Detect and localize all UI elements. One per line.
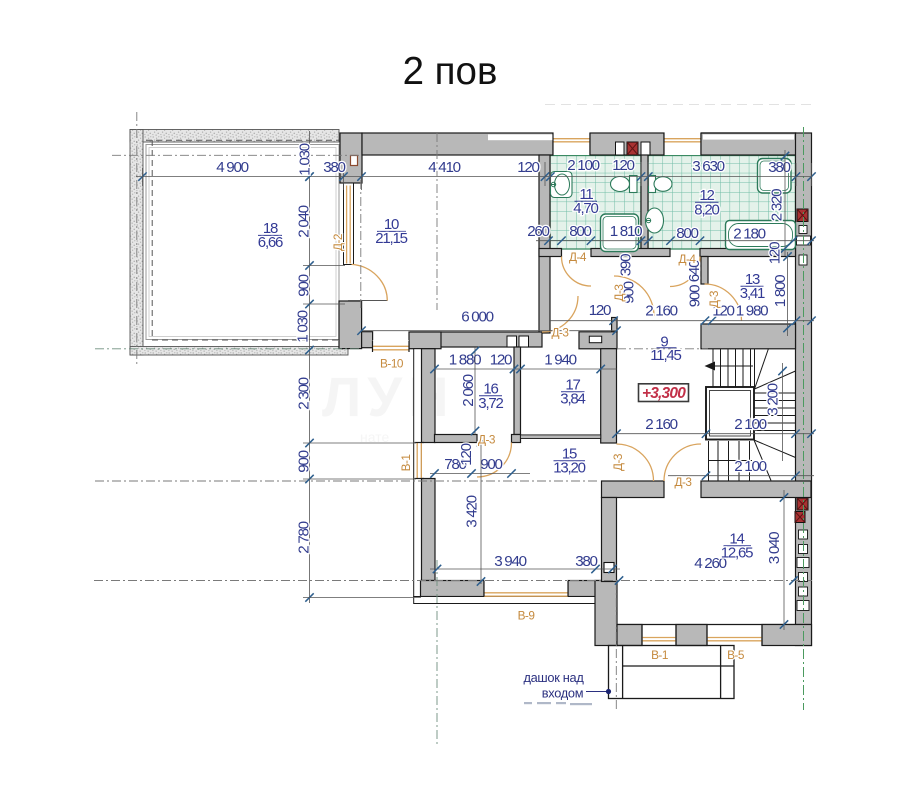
svg-text:В-10: В-10 <box>380 357 404 371</box>
svg-text:Д-3: Д-3 <box>478 433 496 447</box>
svg-text:входом: входом <box>542 686 583 701</box>
svg-text:2 780: 2 780 <box>295 521 312 553</box>
svg-text:6 000: 6 000 <box>461 309 493 326</box>
svg-text:2 пов: 2 пов <box>403 50 498 93</box>
svg-text:900: 900 <box>295 450 312 472</box>
svg-text:2 300: 2 300 <box>295 377 312 409</box>
svg-text:2 040: 2 040 <box>295 205 312 237</box>
svg-text:390: 390 <box>617 254 634 276</box>
svg-text:1 810: 1 810 <box>610 223 642 240</box>
svg-text:Д-4: Д-4 <box>569 250 587 264</box>
svg-text:120: 120 <box>517 159 539 176</box>
svg-text:3 200: 3 200 <box>764 383 781 415</box>
svg-text:3 940: 3 940 <box>494 553 526 570</box>
svg-text:2 160: 2 160 <box>645 303 677 320</box>
svg-text:260: 260 <box>527 223 549 240</box>
svg-text:2 320: 2 320 <box>768 189 785 221</box>
svg-text:4 900: 4 900 <box>216 159 248 176</box>
svg-text:800: 800 <box>569 223 591 240</box>
svg-text:1 980: 1 980 <box>736 303 768 320</box>
svg-text:8,20: 8,20 <box>694 201 719 218</box>
svg-text:+3,300: +3,300 <box>642 385 686 402</box>
svg-text:Д-3: Д-3 <box>707 290 721 308</box>
svg-text:1 030: 1 030 <box>294 310 311 342</box>
svg-text:21,15: 21,15 <box>375 230 407 247</box>
svg-text:1 880: 1 880 <box>449 352 481 369</box>
svg-text:3,72: 3,72 <box>478 395 503 412</box>
svg-text:2 160: 2 160 <box>645 416 677 433</box>
svg-text:1 800: 1 800 <box>772 275 789 307</box>
svg-text:120: 120 <box>589 302 611 319</box>
svg-text:380: 380 <box>768 159 790 176</box>
svg-text:3 420: 3 420 <box>463 495 480 527</box>
svg-text:120: 120 <box>458 443 475 465</box>
svg-text:900: 900 <box>480 456 502 473</box>
svg-text:2 100: 2 100 <box>567 157 599 174</box>
svg-text:В-9: В-9 <box>518 609 535 623</box>
svg-text:3 040: 3 040 <box>766 532 783 564</box>
svg-text:120: 120 <box>766 242 783 264</box>
svg-text:11,45: 11,45 <box>650 347 681 364</box>
svg-text:2 060: 2 060 <box>460 374 477 406</box>
svg-text:1 940: 1 940 <box>544 352 576 369</box>
svg-text:1 030: 1 030 <box>296 143 313 175</box>
svg-text:Д-2: Д-2 <box>331 234 345 251</box>
svg-text:120: 120 <box>490 352 512 369</box>
svg-text:4 410: 4 410 <box>428 159 460 176</box>
svg-text:120: 120 <box>612 157 634 174</box>
svg-text:6,66: 6,66 <box>258 234 283 251</box>
svg-text:13,20: 13,20 <box>553 459 585 476</box>
svg-text:дашок над: дашок над <box>523 670 584 685</box>
svg-text:380: 380 <box>323 159 345 176</box>
svg-text:380: 380 <box>575 553 597 570</box>
svg-text:Д-3: Д-3 <box>611 453 625 471</box>
svg-text:2 100: 2 100 <box>734 458 766 475</box>
svg-text:В-1: В-1 <box>399 455 413 472</box>
svg-text:В-1: В-1 <box>651 648 668 662</box>
svg-text:900: 900 <box>295 274 312 296</box>
svg-text:3,84: 3,84 <box>560 391 585 408</box>
svg-text:2 100: 2 100 <box>734 416 766 433</box>
svg-text:Д-3: Д-3 <box>552 326 570 340</box>
svg-text:Д-3: Д-3 <box>675 475 693 489</box>
svg-text:3 630: 3 630 <box>692 158 724 175</box>
svg-text:3,41: 3,41 <box>740 285 765 302</box>
svg-text:800: 800 <box>676 225 698 242</box>
svg-text:2 180: 2 180 <box>733 226 765 243</box>
svg-text:900: 900 <box>686 285 703 307</box>
svg-text:Д-3: Д-3 <box>612 284 626 302</box>
svg-text:Д-4: Д-4 <box>679 252 697 266</box>
svg-text:4,70: 4,70 <box>573 200 598 217</box>
svg-text:12,65: 12,65 <box>721 544 753 561</box>
svg-text:В-5: В-5 <box>727 648 745 662</box>
